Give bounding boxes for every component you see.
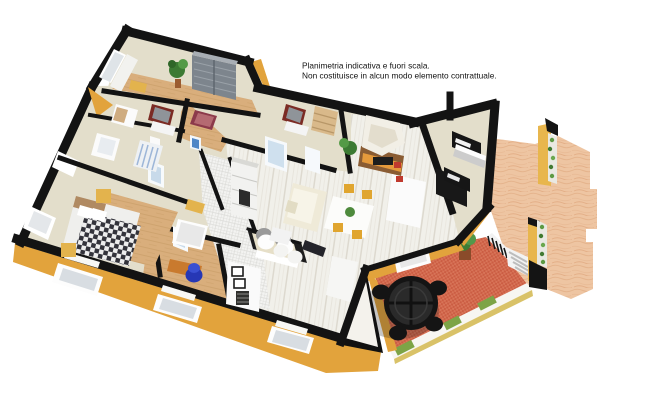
svg-text:Non costituisce in alcun modo: Non costituisce in alcun modo elemento c… (302, 71, 497, 81)
svg-text:Planimetria indicativa e fuori: Planimetria indicativa e fuori scala. (302, 61, 430, 71)
